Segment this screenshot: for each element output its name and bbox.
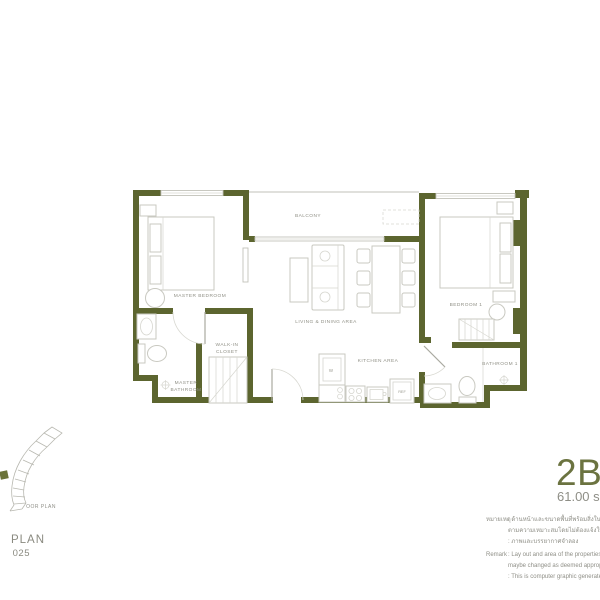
floor-plan-drawing: BALCONY MASTER BEDROOM LIVING & DINING A… <box>0 0 600 600</box>
remark-text: maybe changed as deemed appropriate b <box>508 563 600 569</box>
bedside-table <box>140 205 156 216</box>
keyplan-title-line1: PLAN <box>0 534 45 546</box>
dining-chair <box>357 249 370 263</box>
remark-text: : This is computer graphic generated <box>508 574 600 580</box>
keyplan-title-line2: 025 <box>0 548 30 559</box>
fridge-label: REF <box>398 390 406 394</box>
remark-line: : ภาพและบรรยากาศจำลอง <box>486 539 578 545</box>
stove <box>346 386 365 402</box>
toilet <box>459 377 475 396</box>
master-bathroom-label-2: BATHROOM <box>171 387 202 393</box>
toilet-tank <box>138 344 145 363</box>
dining-table <box>372 246 400 313</box>
remark-text: : Lay out and area of the properties whi… <box>508 552 600 558</box>
balcony-label: BALCONY <box>295 213 321 219</box>
toilet <box>148 346 167 362</box>
pillow <box>500 254 511 283</box>
shower-symbol <box>499 375 509 385</box>
unit-area: 61.00 s <box>557 489 600 504</box>
shower-symbol <box>161 380 171 390</box>
remark-label: หมายเหตุ <box>486 517 508 523</box>
remark-line: Remark: Lay out and area of the properti… <box>486 552 600 558</box>
dining-chair <box>357 293 370 307</box>
bathroom1-label: BATHROOM 1 <box>482 361 518 367</box>
remark-text: : ด้านหน้าและขนาดพื้นที่พร้อมสิ่งในอาคาร… <box>508 517 600 523</box>
keyplan-caption: OOR PLAN <box>0 504 56 510</box>
dining-chair <box>402 249 415 263</box>
stool <box>489 304 505 320</box>
dressing-table <box>493 291 515 302</box>
sofa <box>312 245 344 310</box>
master-bathroom-label-1: MASTER <box>175 380 198 386</box>
unit-model-title: 2B- <box>556 452 600 494</box>
dining-chair <box>402 293 415 307</box>
keyplan-icon <box>0 427 62 511</box>
bedroom1-label: BEDROOM 1 <box>450 302 483 308</box>
remark-line: : This is computer graphic generated <box>486 574 600 580</box>
bedroom1-furniture <box>440 202 515 340</box>
bedroom1-door <box>424 346 445 367</box>
remark-text: ตามความเหมาะสมโดยไม่ต้องแจ้งให้ทราบล่วงห… <box>508 528 600 534</box>
round-table <box>146 289 165 308</box>
dining-chair <box>402 271 415 285</box>
ac-unit <box>383 210 419 224</box>
toilet-tank <box>459 397 476 403</box>
remark-line: หมายเหตุ: ด้านหน้าและขนาดพื้นที่พร้อมสิ่… <box>486 517 600 523</box>
kitchen-label: KITCHEN AREA <box>358 358 399 364</box>
master-bedroom-label: MASTER BEDROOM <box>174 293 226 299</box>
bathroom1-fixtures <box>424 348 509 403</box>
bedside-table <box>497 202 513 214</box>
remark-label: Remark <box>486 552 508 558</box>
keyplan-unit-marker <box>0 470 9 479</box>
pillow <box>150 256 161 284</box>
walk-in-closet-label-1: WALK-IN <box>216 342 239 348</box>
pillow <box>150 224 161 252</box>
remark-line: ตามความเหมาะสมโดยไม่ต้องแจ้งให้ทราบล่วงห… <box>486 528 600 534</box>
living-dining-label: LIVING & DINING AREA <box>295 319 357 325</box>
living-dining-furniture <box>290 245 415 313</box>
remark-text: : ภาพและบรรยากาศจำลอง <box>508 539 578 545</box>
walk-in-closet-label-2: CLOSET <box>216 349 238 355</box>
floor-plan-page: BALCONY MASTER BEDROOM LIVING & DINING A… <box>0 0 600 600</box>
remark-line: maybe changed as deemed appropriate b <box>486 563 600 569</box>
tv-console <box>290 258 308 302</box>
master-bedroom-sliding-door <box>243 248 248 282</box>
master-bedroom-furniture <box>140 205 214 308</box>
pillow <box>500 223 511 252</box>
walk-in-closet-fixtures <box>209 357 247 403</box>
bathroom-sink <box>424 384 451 403</box>
dining-chair <box>357 271 370 285</box>
